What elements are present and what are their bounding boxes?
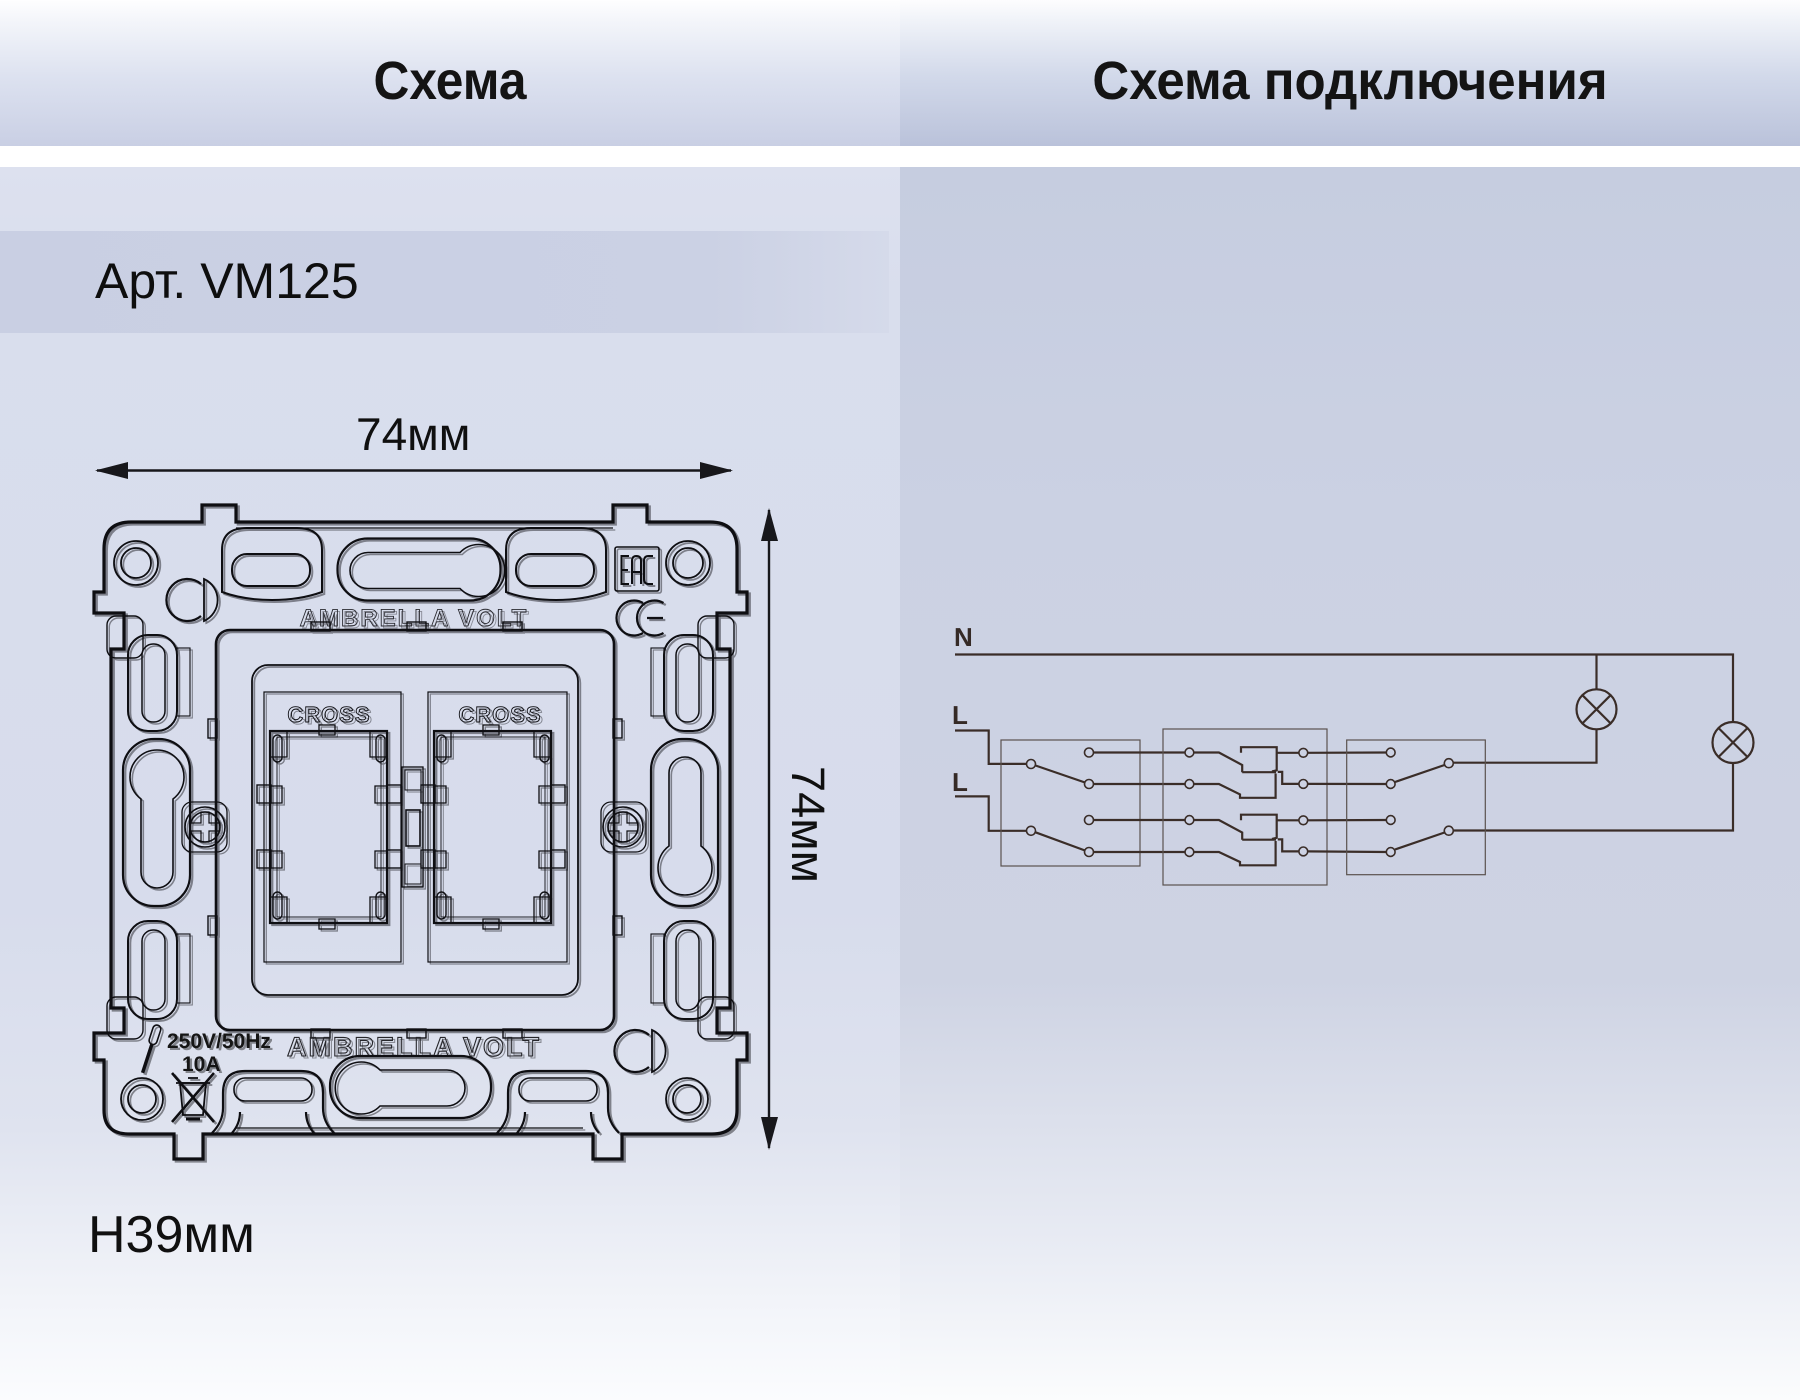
svg-text:H39мм: H39мм — [88, 1206, 255, 1264]
svg-text:CROSS: CROSS — [458, 702, 541, 727]
svg-text:AMBRELLA VOLT: AMBRELLA VOLT — [287, 1032, 541, 1062]
svg-text:L: L — [952, 767, 968, 797]
svg-text:74мм: 74мм — [782, 766, 835, 883]
svg-text:N: N — [954, 622, 973, 652]
svg-text:L: L — [952, 700, 968, 730]
svg-text:74мм: 74мм — [356, 408, 470, 460]
svg-text:AMBRELLA VOLT: AMBRELLA VOLT — [300, 605, 529, 632]
svg-text:CROSS: CROSS — [287, 702, 370, 727]
svg-text:10A: 10A — [182, 1053, 221, 1076]
svg-text:250V/50Hz: 250V/50Hz — [167, 1030, 271, 1053]
